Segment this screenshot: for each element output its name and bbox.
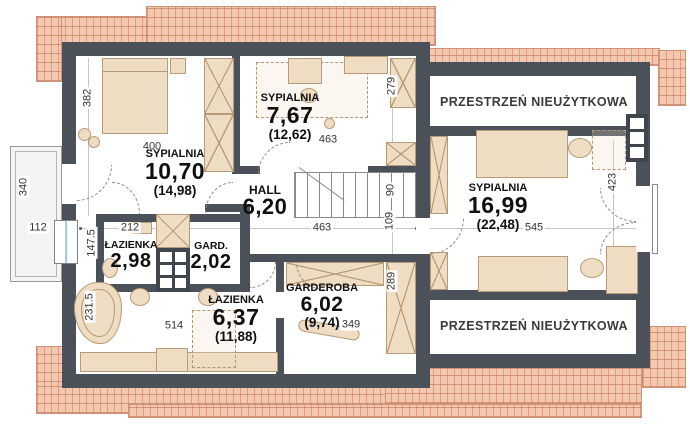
interior-right-wing [430, 76, 636, 354]
desk-icon [288, 58, 322, 84]
dimension-212: 212 [119, 223, 141, 234]
room-area-gross: (11,88) [208, 330, 264, 344]
wardrobe-icon [430, 136, 448, 214]
bed-icon [478, 256, 568, 292]
dimension-463-top: 463 [317, 135, 339, 146]
room-area: 6,37 [208, 306, 264, 330]
roof-band-bottom-step [128, 404, 642, 418]
roof-corner-top-right [658, 50, 686, 106]
room-area: 2,02 [191, 252, 232, 273]
room-label-garderoba: GARDEROBA 6,02 (9,74) [286, 283, 358, 330]
room-area: 10,70 [145, 160, 205, 184]
roof-corner-top-left [36, 16, 62, 82]
room-area-gross: (14,98) [145, 184, 205, 198]
wardrobe-icon [204, 58, 234, 114]
dimension-423: 423 [608, 171, 619, 193]
room-area: 6,20 [243, 196, 288, 219]
room-area-gross: (9,74) [286, 316, 358, 330]
dimension-382: 382 [83, 87, 94, 109]
wall-bedroom2-bottom-left [232, 166, 260, 174]
window-left [54, 220, 78, 264]
bed-pillow-icon [102, 58, 168, 72]
room-area: 16,99 [468, 194, 528, 218]
wardrobe-icon [156, 214, 190, 248]
door-opening-balcony [62, 164, 76, 204]
attic-label-bottom: PRZESTRZEŃ NIEUŻYTKOWA [440, 319, 628, 333]
room-label-lazienka-298: ŁAZIENKA 2,98 [104, 240, 157, 272]
room-area: 2,98 [104, 251, 157, 272]
wall-garderoba-top [284, 254, 416, 262]
dimension-514: 514 [163, 321, 185, 332]
room-label-sypialnia-1070: SYPIALNIA 10,70 (14,98) [145, 149, 205, 198]
wall-bath2-top [250, 254, 276, 262]
plant-icon [88, 136, 100, 148]
room-label-hall: HALL 6,20 [243, 184, 288, 219]
sink-icon [156, 348, 188, 372]
dimension-90: 90 [386, 182, 397, 198]
shelf-icon [344, 56, 388, 74]
room-area-gross: (22,48) [468, 218, 528, 232]
dimension-289: 289 [387, 270, 398, 292]
door-opening-garderoba [276, 292, 284, 318]
floor-plan: 382 400 340 112 147.5 212 231.5 514 463 … [0, 0, 690, 431]
chimney-block-right [626, 114, 648, 162]
dimension-dot [79, 227, 82, 230]
room-label-gard: GARD. 2,02 [191, 241, 232, 273]
chair-icon [568, 138, 592, 158]
room-area-gross: (12,62) [261, 128, 320, 142]
bed-icon [476, 130, 568, 178]
desk-icon [592, 130, 626, 170]
dimension-340: 340 [19, 176, 30, 198]
room-label-sypialnia-767: SYPIALNIA 7,67 (12,62) [261, 93, 320, 142]
door-opening-right [636, 186, 650, 252]
attic-label-top: PRZESTRZEŃ NIEUŻYTKOWA [440, 95, 628, 109]
window-right-frame [652, 184, 658, 254]
wardrobe-icon [430, 252, 448, 290]
dimension-231-5: 231.5 [85, 291, 96, 323]
wardrobe-icon [386, 142, 416, 166]
chimney-block [156, 248, 190, 292]
room-area: 6,02 [286, 294, 358, 316]
wardrobe-icon [204, 114, 234, 172]
dimension-112: 112 [27, 223, 49, 234]
dimension-463-hall: 463 [311, 223, 333, 234]
dimension-279: 279 [387, 75, 398, 97]
room-label-sypialnia-1699: SYPIALNIA 16,99 (22,48) [468, 183, 528, 232]
toilet-icon [130, 288, 150, 306]
nightstand-icon [170, 58, 186, 74]
balcony-inner-line [15, 151, 57, 277]
chair-icon [580, 258, 604, 278]
plant-icon [324, 118, 335, 129]
dimension-147-5: 147.5 [87, 227, 98, 259]
room-area: 7,67 [261, 104, 320, 128]
stairs [294, 172, 416, 218]
dimension-109: 109 [385, 210, 396, 232]
door-opening-bedroom3 [416, 218, 430, 254]
room-label-lazienka-637: ŁAZIENKA 6,37 (11,88) [208, 295, 264, 344]
roof-band-top-middle [146, 6, 436, 46]
